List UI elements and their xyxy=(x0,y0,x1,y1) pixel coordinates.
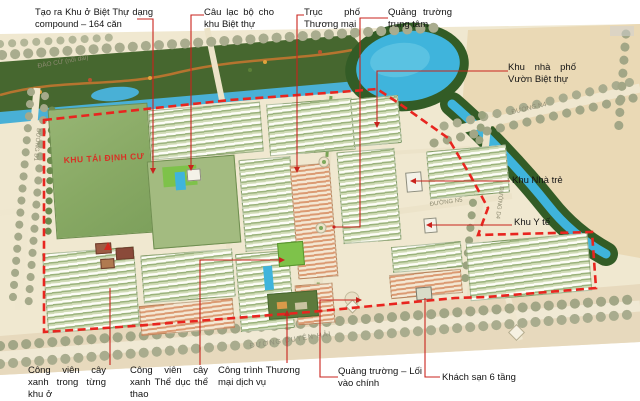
road-n4 xyxy=(438,88,640,134)
temple-cluster xyxy=(89,234,144,278)
housing-block xyxy=(391,241,463,273)
callout-medical: Khu Y tế xyxy=(514,217,564,229)
callout-hotel: Khách sạn 6 tầng xyxy=(442,372,532,384)
housing-block xyxy=(266,98,356,157)
temple-building xyxy=(95,242,112,254)
callout-central-square: Quảng trường trung tâm xyxy=(388,7,452,31)
callout-entrance-square: Quảng trường – Lối vào chính xyxy=(338,366,422,390)
south-diamond xyxy=(509,325,525,341)
road-west-branch xyxy=(0,207,46,213)
housing-block xyxy=(148,102,264,161)
pond xyxy=(90,85,139,103)
commercial-building xyxy=(277,301,288,309)
belt-tree-dots xyxy=(38,50,322,94)
callout-neighborhood-park: Công viên cây xanh trong từng khu ở xyxy=(28,365,106,401)
entrance-diamond xyxy=(346,300,359,313)
club-pool xyxy=(175,172,186,191)
road-d1 xyxy=(18,88,37,310)
road-south-entry xyxy=(508,298,520,340)
housing-block xyxy=(466,233,593,301)
callout-garden-shophouse: Khu nhà phố Vườn Biệt thự xyxy=(508,62,576,86)
housing-block xyxy=(336,148,401,244)
scan-mark xyxy=(610,26,634,36)
clubhouse xyxy=(186,168,201,181)
belt-winding-road xyxy=(0,50,352,95)
medical-building xyxy=(423,217,437,233)
callout-sports-park: Công viên cây xanh Thể dục thể thao xyxy=(130,365,208,401)
leader-hotel xyxy=(425,298,440,377)
commercial-building xyxy=(295,302,308,310)
villa-club-block xyxy=(147,155,242,250)
callout-compound-villa: Tạo ra Khu ở Biệt Thự dạng compound – 16… xyxy=(35,7,153,30)
north-entry-road xyxy=(207,28,222,100)
lake-highlight xyxy=(368,39,432,80)
callout-kindergarten: Khu Nhà trẻ xyxy=(512,175,582,187)
sports-field xyxy=(277,241,305,267)
hotel-building xyxy=(415,286,432,300)
road-label-dao-cu: ĐÀO CỪ (nối dài) xyxy=(37,52,89,70)
shophouse-block xyxy=(139,298,235,336)
housing-block xyxy=(140,248,235,303)
callout-commercial-axis: Trục phố Thương mại xyxy=(304,7,360,31)
housing-block xyxy=(426,145,510,200)
commercial-cluster xyxy=(267,290,319,320)
garden-shophouse-block xyxy=(350,95,402,147)
temple-building xyxy=(115,247,134,260)
temple-building xyxy=(100,258,115,269)
resettlement-field xyxy=(48,103,157,240)
road-label-duyen-hai: ĐƯỜNG DUYÊN HẢI xyxy=(249,329,332,350)
housing-block xyxy=(238,156,297,252)
kindergarten-building xyxy=(405,171,423,192)
lake xyxy=(352,25,464,107)
road-label-n4: ĐƯỜNG N4 xyxy=(510,99,547,116)
road-label-d1: ĐƯỜNG D1 xyxy=(32,128,42,162)
callout-villa-club: Câu lạc bộ cho khu Biệt thự xyxy=(204,7,274,31)
callout-commercial-services: Công trình Thương mại dịch vụ xyxy=(218,365,300,389)
masterplan-screenshot: ĐÀO CỪ (nối dài) ĐƯỜNG N4 ĐƯỜNG N5 ĐƯỜNG… xyxy=(0,0,640,401)
